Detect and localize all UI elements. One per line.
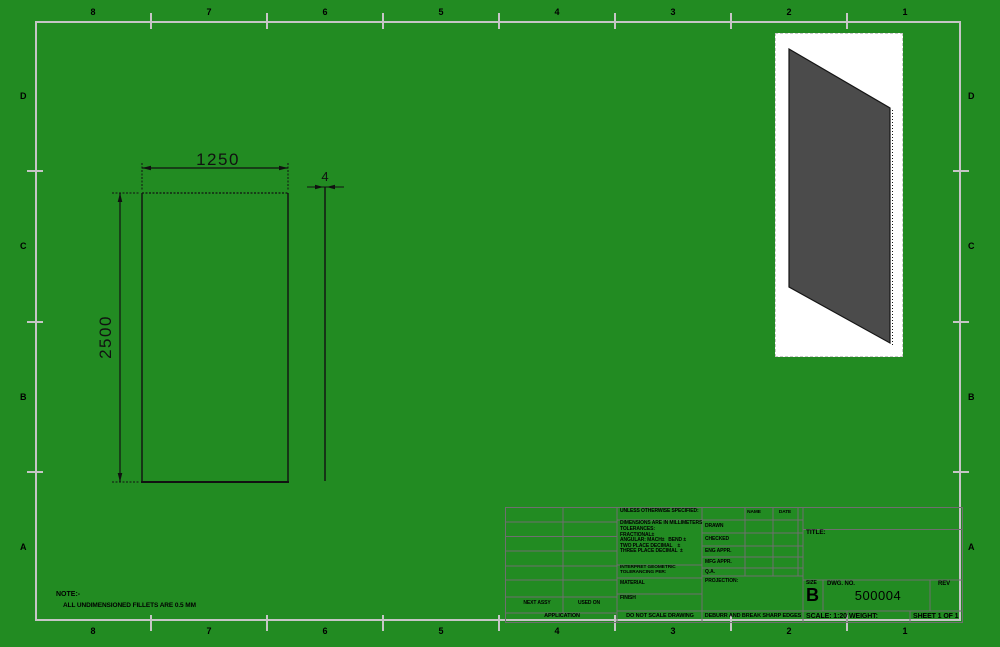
projection-label: PROJECTION: <box>705 579 738 584</box>
tolerancing-per-label: TOLERANCING PER: <box>620 571 666 576</box>
rev-label: REV <box>938 581 950 587</box>
note-heading: NOTE:- <box>56 591 80 598</box>
dimension-thickness-label: 4 <box>321 169 328 184</box>
drawing-sheet: 8 7 6 5 4 3 2 1 8 7 6 5 4 3 2 1 D C B A … <box>0 0 1000 647</box>
deburr-label: DEBURR AND BREAK SHARP EDGES <box>705 614 802 620</box>
eng-appr-label: ENG APPR. <box>705 549 731 554</box>
application-label: APPLICATION <box>544 614 580 620</box>
unless-otherwise-label: UNLESS OTHERWISE SPECIFIED: <box>620 509 699 514</box>
qa-label: Q.A. <box>705 570 715 575</box>
tolerance-line: THREE PLACE DECIMAL ± <box>620 549 683 554</box>
title-label: TITLE: <box>806 530 826 537</box>
dwg-no-label: DWG. NO. <box>827 581 855 587</box>
title-block-grid <box>505 507 963 623</box>
scale-value: SCALE: 1:20 <box>806 613 847 620</box>
next-assy-header: NEXT ASSY <box>523 601 550 606</box>
checked-label: CHECKED <box>705 537 729 542</box>
material-label: MATERIAL <box>620 581 645 586</box>
finish-label: FINISH <box>620 596 636 601</box>
drawn-label: DRAWN <box>705 524 723 529</box>
do-not-scale-label: DO NOT SCALE DRAWING <box>626 614 694 620</box>
used-on-header: USED ON <box>578 601 600 606</box>
date-header: DATE <box>779 511 791 516</box>
sheet-label: SHEET 1 OF 1 <box>913 613 958 620</box>
name-header: NAME <box>747 511 761 516</box>
size-value: B <box>806 586 819 604</box>
note-body: ALL UNDIMENSIONED FILLETS ARE 0.5 MM <box>63 602 196 609</box>
weight-label: WEIGHT: <box>849 613 878 620</box>
dimension-width-label: 1250 <box>196 150 240 170</box>
dwg-no-value: 500004 <box>855 589 901 602</box>
dimension-height-label: 2500 <box>96 315 116 359</box>
isometric-sheet-body <box>776 34 902 356</box>
mfg-appr-label: MFG APPR. <box>705 560 732 565</box>
isometric-view-viewport <box>775 33 903 357</box>
